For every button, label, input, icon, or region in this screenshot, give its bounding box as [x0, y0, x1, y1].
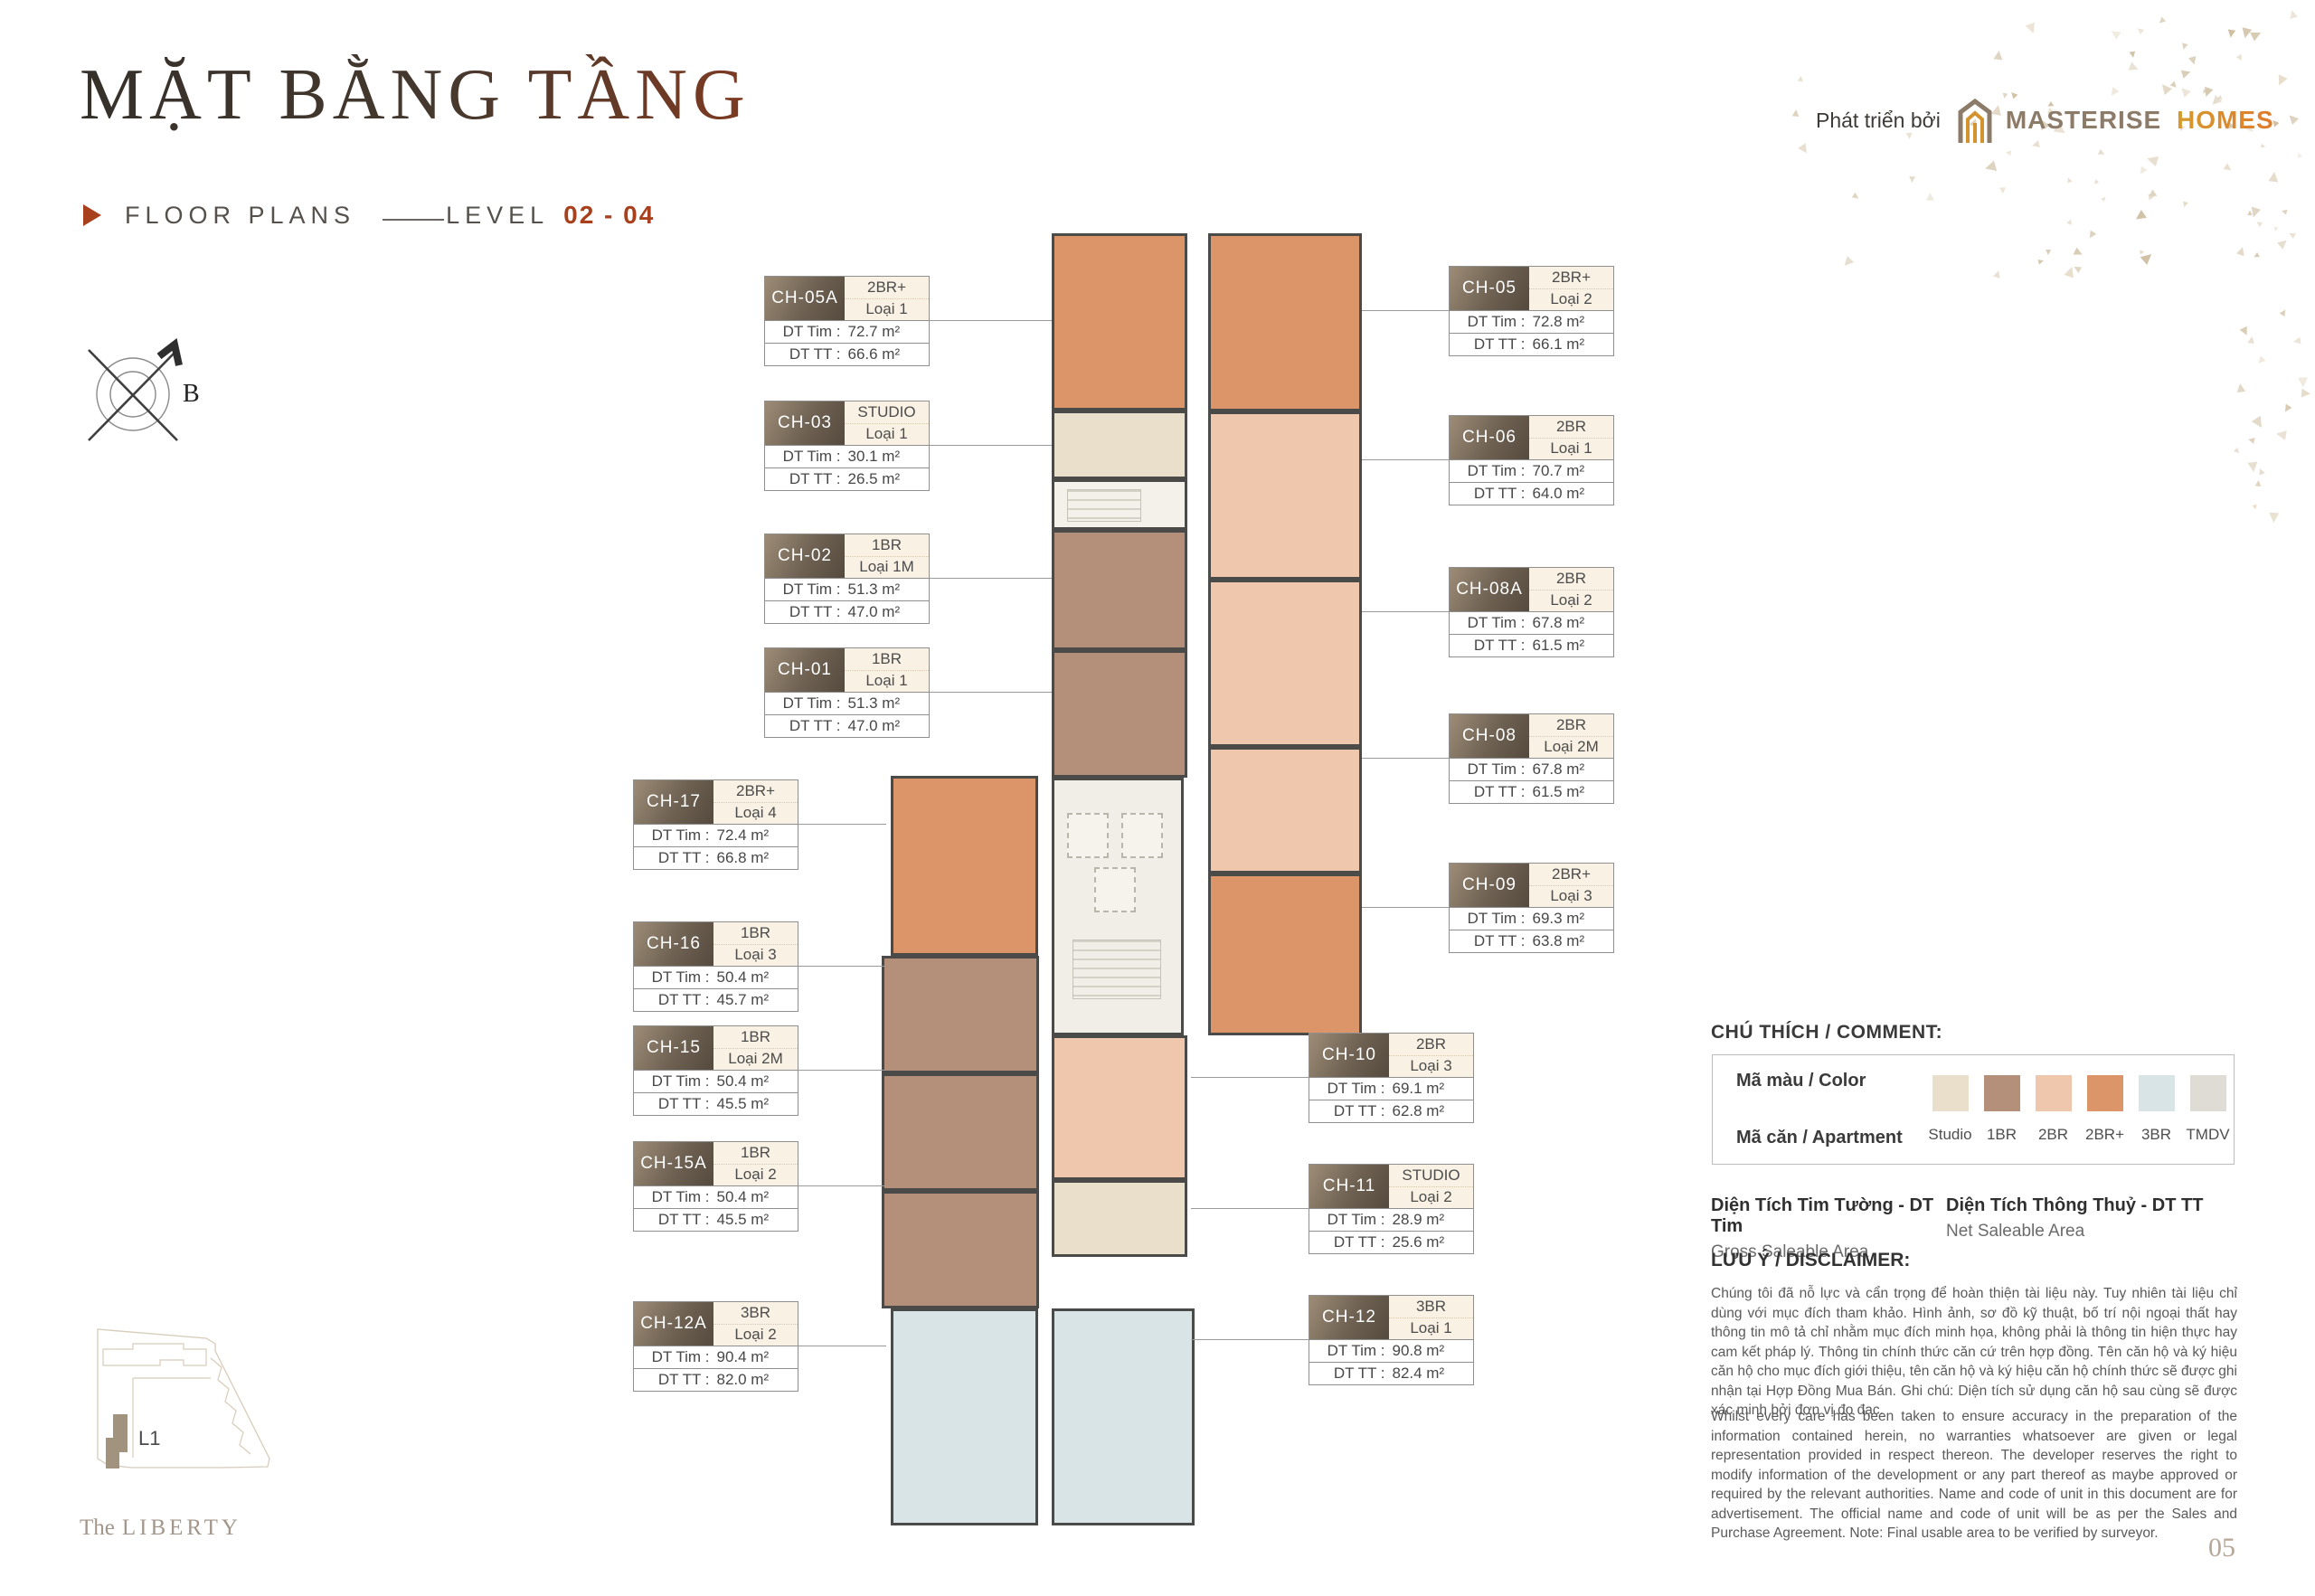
leader-line-CH-15 [798, 1070, 886, 1071]
unit-type: 1BR [713, 1142, 798, 1165]
unit-dt-tt-row: DT TT : 82.0 m² [634, 1368, 798, 1391]
unit-dt-tt-row: DT TT : 64.0 m² [1450, 482, 1613, 505]
page-number: 05 [2208, 1533, 2235, 1563]
unit-type: 2BR+ [1529, 864, 1613, 886]
unit-variant: Loại 1 [845, 299, 929, 321]
leader-line-CH-11 [1191, 1208, 1309, 1209]
dt-tim-label: DT Tim : [774, 448, 841, 466]
elevator-icon [1094, 867, 1136, 912]
unit-type: 1BR [845, 648, 929, 671]
unit-dt-tt-row: DT TT : 62.8 m² [1309, 1100, 1473, 1122]
legend-swatch-tmdv [2190, 1075, 2226, 1111]
dt-tim-value: 50.4 m² [717, 1072, 789, 1091]
dt-tt-value: 82.0 m² [717, 1371, 789, 1389]
dt-tim-label: DT Tim : [643, 826, 710, 845]
dt-tt-label: DT TT : [774, 345, 841, 364]
plan-unit-CH-08A [1208, 580, 1362, 747]
unit-dt-tim-row: DT Tim : 69.1 m² [1309, 1078, 1473, 1100]
dt-tt-label: DT TT : [774, 717, 841, 735]
unit-code: CH-09 [1450, 864, 1529, 907]
dt-tt-value: 66.6 m² [848, 345, 921, 364]
unit-type-cell: STUDIO Loại 2 [1389, 1165, 1473, 1208]
unit-dt-tt-row: DT TT : 61.5 m² [1450, 634, 1613, 656]
unit-code: CH-12A [634, 1302, 713, 1346]
stairs-icon [1072, 940, 1161, 999]
dt-tim-label: DT Tim : [774, 694, 841, 713]
dt-tim-label: DT Tim : [1318, 1342, 1385, 1360]
unit-type-cell: 2BR Loại 2 [1529, 568, 1613, 611]
dt-tt-value: 47.0 m² [848, 603, 921, 621]
dt-tim-label: DT Tim : [1318, 1211, 1385, 1229]
unit-variant: Loại 2 [713, 1165, 798, 1186]
disclaimer-vietnamese: Chúng tôi đã nỗ lực và cẩn trọng để hoàn… [1711, 1284, 2237, 1421]
legend-heading: CHÚ THÍCH / COMMENT: [1711, 1022, 1942, 1044]
dt-tt-value: 61.5 m² [1533, 783, 1605, 801]
unit-dt-tim-row: DT Tim : 72.4 m² [634, 825, 798, 846]
unit-card-CH-16: CH-16 1BR Loại 3 DT Tim : 50.4 m² DT TT … [633, 921, 798, 1012]
unit-card-CH-05: CH-05 2BR+ Loại 2 DT Tim : 72.8 m² DT TT… [1449, 266, 1614, 356]
unit-dt-tt-row: DT TT : 47.0 m² [765, 714, 929, 737]
plan-unit-CH-03 [1052, 411, 1187, 479]
dt-tt-label: DT TT : [1459, 485, 1526, 503]
dt-tim-value: 69.1 m² [1393, 1080, 1465, 1098]
project-prefix: The [80, 1516, 115, 1540]
unit-variant: Loại 2 [1529, 590, 1613, 612]
dt-tt-definition-subtitle: Net Saleable Area [1946, 1222, 2203, 1242]
dt-tt-value: 25.6 m² [1393, 1233, 1465, 1251]
leader-line-CH-17 [798, 824, 886, 825]
dt-tim-value: 70.7 m² [1533, 462, 1605, 480]
unit-variant: Loại 3 [1389, 1056, 1473, 1078]
dt-tim-value: 51.3 m² [848, 694, 921, 713]
legend-swatch-3br [2139, 1075, 2175, 1111]
leader-line-CH-02 [930, 578, 1052, 579]
legend-box: Mã màu / Color Mã căn / Apartment Studio… [1712, 1054, 2235, 1165]
unit-variant: Loại 2 [713, 1325, 798, 1346]
dt-tim-value: 72.7 m² [848, 323, 921, 341]
unit-dt-tim-row: DT Tim : 51.3 m² [765, 579, 929, 600]
plan-unit-CH-01 [1052, 650, 1187, 778]
leader-line-CH-15A [798, 1185, 886, 1186]
dt-tim-label: DT Tim : [1459, 313, 1526, 331]
leader-line-CH-06 [1362, 459, 1449, 460]
minimap-highlighted-building [106, 1414, 128, 1469]
unit-type-cell: 2BR Loại 3 [1389, 1034, 1473, 1077]
unit-code: CH-02 [765, 534, 845, 578]
unit-dt-tt-row: DT TT : 63.8 m² [1450, 930, 1613, 952]
elevator-icon [1121, 813, 1163, 858]
unit-type-cell: 1BR Loại 1M [845, 534, 929, 578]
unit-type: 2BR [1529, 568, 1613, 590]
unit-variant: Loại 1M [845, 557, 929, 579]
unit-code: CH-16 [634, 922, 713, 966]
leader-line-CH-09 [1362, 907, 1449, 908]
unit-card-CH-09: CH-09 2BR+ Loại 3 DT Tim : 69.3 m² DT TT… [1449, 863, 1614, 953]
unit-dt-tt-row: DT TT : 45.5 m² [634, 1208, 798, 1231]
unit-type: 1BR [713, 922, 798, 945]
unit-variant: Loại 2 [1389, 1187, 1473, 1209]
unit-card-CH-08A: CH-08A 2BR Loại 2 DT Tim : 67.8 m² DT TT… [1449, 567, 1614, 657]
leader-line-CH-05A [930, 320, 1052, 321]
unit-dt-tim-row: DT Tim : 90.8 m² [1309, 1340, 1473, 1362]
legend-swatch-studio [1932, 1075, 1969, 1111]
dt-tt-value: 45.5 m² [717, 1095, 789, 1113]
dt-tim-value: 90.4 m² [717, 1348, 789, 1366]
unit-type: 1BR [713, 1026, 798, 1049]
plan-unit-CH-17 [891, 776, 1038, 956]
plan-stairwell-upper [1052, 479, 1187, 530]
leader-line-CH-12 [1191, 1339, 1309, 1340]
unit-type-cell: 2BR+ Loại 1 [845, 277, 929, 320]
unit-dt-tt-row: DT TT : 47.0 m² [765, 600, 929, 623]
unit-code: CH-08 [1450, 714, 1529, 758]
unit-type: 2BR [1529, 714, 1613, 737]
leader-line-CH-10 [1191, 1077, 1309, 1078]
plan-unit-CH-05A [1052, 233, 1187, 411]
unit-dt-tim-row: DT Tim : 30.1 m² [765, 446, 929, 467]
dt-tim-value: 50.4 m² [717, 1188, 789, 1206]
unit-type: 3BR [713, 1302, 798, 1325]
plan-unit-CH-12A [891, 1308, 1038, 1525]
dt-tim-value: 69.3 m² [1533, 910, 1605, 928]
dt-tt-label: DT TT : [643, 991, 710, 1009]
dt-tt-label: DT TT : [1318, 1233, 1385, 1251]
unit-type-cell: 3BR Loại 2 [713, 1302, 798, 1346]
dt-tim-label: DT Tim : [643, 1072, 710, 1091]
dt-tt-label: DT TT : [643, 1371, 710, 1389]
dt-tim-value: 28.9 m² [1393, 1211, 1465, 1229]
unit-variant: Loại 4 [713, 803, 798, 825]
unit-dt-tim-row: DT Tim : 67.8 m² [1450, 759, 1613, 780]
dt-tt-label: DT TT : [1318, 1365, 1385, 1383]
unit-code: CH-17 [634, 780, 713, 824]
dt-tt-label: DT TT : [774, 470, 841, 488]
unit-dt-tim-row: DT Tim : 50.4 m² [634, 1071, 798, 1092]
unit-variant: Loại 1 [845, 671, 929, 693]
dt-tim-label: DT Tim : [643, 1188, 710, 1206]
dt-tt-label: DT TT : [643, 1211, 710, 1229]
dt-tt-value: 63.8 m² [1533, 932, 1605, 950]
unit-variant: Loại 2M [713, 1049, 798, 1071]
unit-type-cell: 2BR+ Loại 3 [1529, 864, 1613, 907]
unit-code: CH-12 [1309, 1296, 1389, 1339]
unit-card-CH-11: CH-11 STUDIO Loại 2 DT Tim : 28.9 m² DT … [1309, 1164, 1474, 1254]
dt-tt-label: DT TT : [774, 603, 841, 621]
legend-swatch-2brplus [2087, 1075, 2123, 1111]
unit-variant: Loại 1 [845, 424, 929, 446]
unit-card-CH-15A: CH-15A 1BR Loại 2 DT Tim : 50.4 m² DT TT… [633, 1141, 798, 1232]
unit-code: CH-03 [765, 401, 845, 445]
unit-dt-tim-row: DT Tim : 90.4 m² [634, 1346, 798, 1368]
unit-dt-tt-row: DT TT : 82.4 m² [1309, 1362, 1473, 1384]
unit-variant: Loại 2M [1529, 737, 1613, 759]
unit-type: 2BR+ [1529, 267, 1613, 289]
dt-tt-label: DT TT : [1459, 335, 1526, 354]
unit-card-CH-08: CH-08 2BR Loại 2M DT Tim : 67.8 m² DT TT… [1449, 713, 1614, 804]
unit-variant: Loại 2 [1529, 289, 1613, 311]
legend-label: 3BR [2141, 1126, 2171, 1144]
unit-type-cell: 2BR+ Loại 4 [713, 780, 798, 824]
unit-code: CH-06 [1450, 416, 1529, 459]
dt-tim-label: DT Tim : [1459, 462, 1526, 480]
unit-code: CH-15 [634, 1026, 713, 1070]
unit-code: CH-05A [765, 277, 845, 320]
dt-tt-label: DT TT : [1318, 1102, 1385, 1120]
unit-dt-tim-row: DT Tim : 51.3 m² [765, 693, 929, 714]
unit-variant: Loại 3 [713, 945, 798, 967]
plan-unit-CH-02 [1052, 530, 1187, 650]
leader-line-CH-16 [798, 966, 886, 967]
dt-tt-label: DT TT : [1459, 783, 1526, 801]
plan-unit-CH-15 [882, 1073, 1039, 1191]
leader-line-CH-08A [1362, 611, 1449, 612]
unit-variant: Loại 1 [1389, 1318, 1473, 1340]
dt-tim-value: 72.4 m² [717, 826, 789, 845]
dt-tim-label: DT Tim : [1459, 910, 1526, 928]
unit-variant: Loại 3 [1529, 886, 1613, 908]
unit-dt-tim-row: DT Tim : 72.7 m² [765, 321, 929, 343]
leader-line-CH-12A [798, 1346, 886, 1346]
dt-tt-value: 64.0 m² [1533, 485, 1605, 503]
dt-tim-value: 72.8 m² [1533, 313, 1605, 331]
legend-label: TMDV [2186, 1126, 2229, 1144]
dt-tt-value: 66.8 m² [717, 849, 789, 867]
footer-project-name: TheLIBERTY [80, 1516, 241, 1541]
legend-items: Studio 1BR 2BR 2BR+ 3BR TMDV [1924, 1075, 2234, 1144]
unit-card-CH-10: CH-10 2BR Loại 3 DT Tim : 69.1 m² DT TT … [1309, 1033, 1474, 1123]
unit-type-cell: 1BR Loại 2M [713, 1026, 798, 1070]
elevator-icon [1067, 813, 1109, 858]
dt-tim-value: 51.3 m² [848, 581, 921, 599]
unit-type-cell: 1BR Loại 1 [845, 648, 929, 692]
legend-label: 1BR [1987, 1126, 2017, 1144]
dt-tim-value: 90.8 m² [1393, 1342, 1465, 1360]
plan-unit-CH-06 [1208, 411, 1362, 580]
legend-apartment-row-label: Mã căn / Apartment [1736, 1128, 1924, 1148]
unit-dt-tt-row: DT TT : 61.5 m² [1450, 780, 1613, 803]
unit-type-cell: 2BR Loại 2M [1529, 714, 1613, 758]
dt-tim-label: DT Tim : [643, 968, 710, 987]
unit-dt-tt-row: DT TT : 45.7 m² [634, 988, 798, 1011]
unit-type-cell: 1BR Loại 3 [713, 922, 798, 966]
plan-unit-CH-09 [1208, 874, 1362, 1035]
unit-type: 2BR+ [845, 277, 929, 299]
unit-dt-tt-row: DT TT : 66.8 m² [634, 846, 798, 869]
dt-tt-value: 45.7 m² [717, 991, 789, 1009]
dt-tt-label: DT TT : [643, 849, 710, 867]
dt-tt-value: 47.0 m² [848, 717, 921, 735]
plan-unit-CH-10 [1052, 1035, 1187, 1180]
unit-dt-tim-row: DT Tim : 50.4 m² [634, 1186, 798, 1208]
dt-tt-value: 26.5 m² [848, 470, 921, 488]
dt-tt-label: DT TT : [643, 1095, 710, 1113]
plan-unit-CH-12 [1052, 1308, 1195, 1525]
unit-type: STUDIO [845, 401, 929, 424]
unit-dt-tt-row: DT TT : 66.6 m² [765, 343, 929, 365]
dt-tt-label: DT TT : [1459, 932, 1526, 950]
unit-card-CH-06: CH-06 2BR Loại 1 DT Tim : 70.7 m² DT TT … [1449, 415, 1614, 505]
site-minimap: L1 [77, 1322, 289, 1503]
unit-variant: Loại 1 [1529, 439, 1613, 460]
unit-type: 3BR [1389, 1296, 1473, 1318]
unit-dt-tim-row: DT Tim : 28.9 m² [1309, 1209, 1473, 1231]
dt-tim-label: DT Tim : [1318, 1080, 1385, 1098]
leader-line-CH-05 [1362, 310, 1449, 311]
plan-unit-CH-08 [1208, 747, 1362, 874]
unit-code: CH-15A [634, 1142, 713, 1185]
unit-code: CH-10 [1309, 1034, 1389, 1077]
dt-tt-value: 45.5 m² [717, 1211, 789, 1229]
dt-tim-label: DT Tim : [774, 581, 841, 599]
plan-unit-CH-05 [1208, 233, 1362, 411]
dt-tim-label: DT Tim : [1459, 614, 1526, 632]
legend-color-row-label: Mã màu / Color [1736, 1071, 1924, 1091]
unit-type-cell: 2BR Loại 1 [1529, 416, 1613, 459]
unit-dt-tt-row: DT TT : 45.5 m² [634, 1092, 798, 1115]
dt-tim-value: 30.1 m² [848, 448, 921, 466]
dt-tt-value: 62.8 m² [1393, 1102, 1465, 1120]
plan-unit-CH-15A [882, 1191, 1039, 1308]
dt-tt-value: 66.1 m² [1533, 335, 1605, 354]
dt-tim-value: 50.4 m² [717, 968, 789, 987]
unit-type-cell: 1BR Loại 2 [713, 1142, 798, 1185]
unit-dt-tt-row: DT TT : 66.1 m² [1450, 333, 1613, 355]
unit-card-CH-17: CH-17 2BR+ Loại 4 DT Tim : 72.4 m² DT TT… [633, 779, 798, 870]
unit-dt-tim-row: DT Tim : 70.7 m² [1450, 460, 1613, 482]
unit-type: 2BR [1389, 1034, 1473, 1056]
unit-card-CH-02: CH-02 1BR Loại 1M DT Tim : 51.3 m² DT TT… [764, 534, 930, 624]
unit-type: STUDIO [1389, 1165, 1473, 1187]
unit-card-CH-01: CH-01 1BR Loại 1 DT Tim : 51.3 m² DT TT … [764, 647, 930, 738]
unit-type: 2BR [1529, 416, 1613, 439]
unit-card-CH-12A: CH-12A 3BR Loại 2 DT Tim : 90.4 m² DT TT… [633, 1301, 798, 1392]
unit-card-CH-03: CH-03 STUDIO Loại 1 DT Tim : 30.1 m² DT … [764, 401, 930, 491]
unit-code: CH-08A [1450, 568, 1529, 611]
unit-code: CH-05 [1450, 267, 1529, 310]
minimap-building-label: L1 [138, 1427, 160, 1450]
unit-type-cell: 2BR+ Loại 2 [1529, 267, 1613, 310]
disclaimer-english: Whilst every care has been taken to ensu… [1711, 1407, 2237, 1544]
unit-type-cell: STUDIO Loại 1 [845, 401, 929, 445]
legend-row-labels: Mã màu / Color Mã căn / Apartment [1736, 1071, 1924, 1148]
dt-tim-definition-title: Diện Tích Tim Tường - DT Tim [1711, 1195, 1946, 1237]
dt-tim-value: 67.8 m² [1533, 614, 1605, 632]
leader-line-CH-08 [1362, 758, 1449, 759]
unit-type: 1BR [845, 534, 929, 557]
unit-type: 2BR+ [713, 780, 798, 803]
leader-line-CH-01 [930, 692, 1052, 693]
unit-card-CH-15: CH-15 1BR Loại 2M DT Tim : 50.4 m² DT TT… [633, 1025, 798, 1116]
dt-tim-label: DT Tim : [774, 323, 841, 341]
disclaimer-heading: LƯU Ý / DISCLAIMER: [1711, 1250, 1910, 1271]
dt-tim-value: 67.8 m² [1533, 760, 1605, 779]
plan-unit-CH-16 [882, 956, 1039, 1073]
project-name: LIBERTY [122, 1516, 241, 1540]
legend-label: 2BR+ [2085, 1126, 2124, 1144]
unit-card-CH-05A: CH-05A 2BR+ Loại 1 DT Tim : 72.7 m² DT T… [764, 276, 930, 366]
unit-dt-tim-row: DT Tim : 69.3 m² [1450, 908, 1613, 930]
unit-type-cell: 3BR Loại 1 [1389, 1296, 1473, 1339]
leader-line-CH-03 [930, 445, 1052, 446]
dt-tt-value: 61.5 m² [1533, 637, 1605, 655]
dt-tt-value: 82.4 m² [1393, 1365, 1465, 1383]
legend-swatch-1br [1984, 1075, 2020, 1111]
unit-dt-tim-row: DT Tim : 67.8 m² [1450, 612, 1613, 634]
unit-dt-tim-row: DT Tim : 50.4 m² [634, 967, 798, 988]
unit-dt-tt-row: DT TT : 25.6 m² [1309, 1231, 1473, 1253]
legend-swatch-2br [2036, 1075, 2072, 1111]
plan-core [1052, 778, 1184, 1035]
dt-tim-label: DT Tim : [643, 1348, 710, 1366]
unit-code: CH-01 [765, 648, 845, 692]
unit-dt-tim-row: DT Tim : 72.8 m² [1450, 311, 1613, 333]
dt-tim-label: DT Tim : [1459, 760, 1526, 779]
plan-unit-CH-11 [1052, 1180, 1187, 1257]
unit-code: CH-11 [1309, 1165, 1389, 1208]
dt-tt-definition-title: Diện Tích Thông Thuỷ - DT TT [1946, 1195, 2203, 1216]
dt-tt-label: DT TT : [1459, 637, 1526, 655]
unit-dt-tt-row: DT TT : 26.5 m² [765, 467, 929, 490]
legend-label: 2BR [2038, 1126, 2068, 1144]
legend-label: Studio [1928, 1126, 1971, 1144]
unit-card-CH-12: CH-12 3BR Loại 1 DT Tim : 90.8 m² DT TT … [1309, 1295, 1474, 1385]
